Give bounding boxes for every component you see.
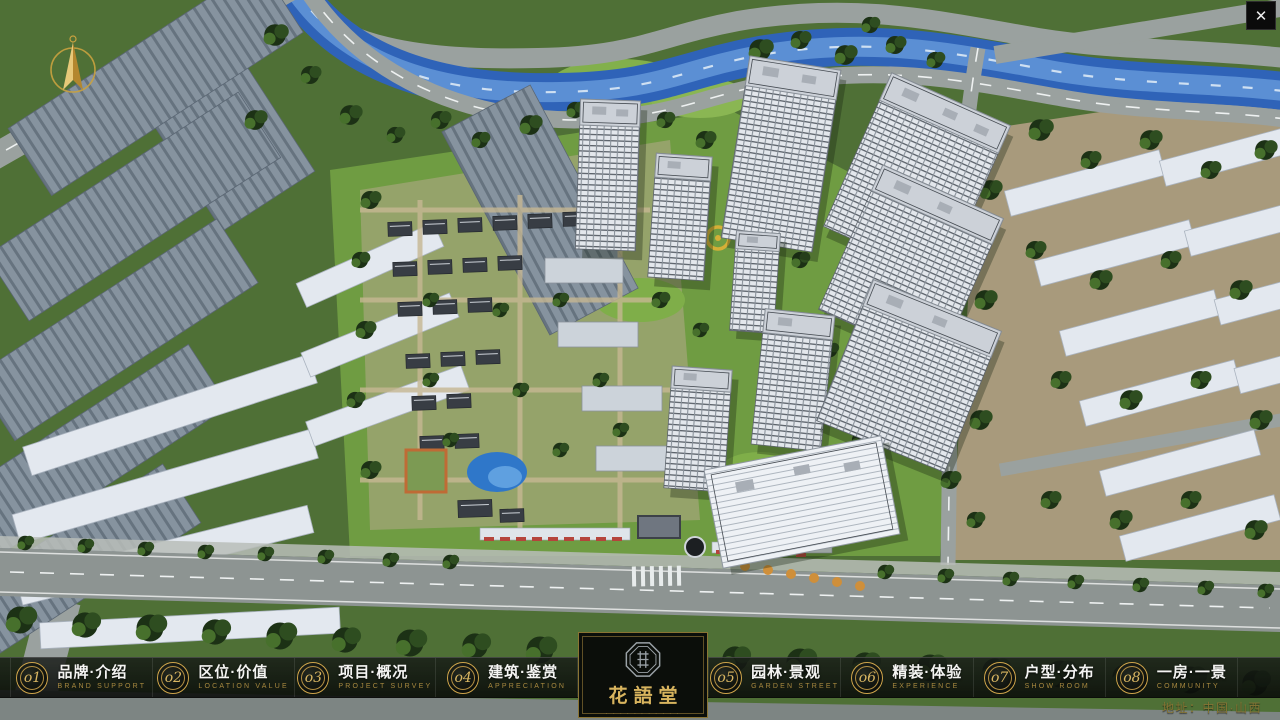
menu-item-architecture[interactable]: o4 建筑·鉴赏 APPRECIATION (436, 658, 578, 697)
menu-item-floorplan[interactable]: o7 户型·分布 SHOW ROOM (974, 658, 1106, 697)
menu-label-zh: 精装·体验 (892, 664, 962, 681)
menu-label-en: GARDEN STREET (751, 683, 839, 691)
menu-item-location[interactable]: o2 区位·价值 LOCATION VALUE (153, 658, 295, 697)
seal-emblem-icon (623, 641, 663, 678)
masterplan-3d-scene[interactable] (0, 0, 1280, 720)
item-number-badge: o5 (710, 662, 742, 694)
item-number-badge: o2 (157, 662, 189, 694)
menu-label-zh: 园林·景观 (751, 664, 821, 681)
menu-item-project[interactable]: o3 项目·概况 PROJECT SURVEY (295, 658, 437, 697)
menu-item-interior[interactable]: o6 精装·体验 EXPERIENCE (841, 658, 973, 697)
menu-label-zh: 一房·一景 (1157, 664, 1227, 681)
menu-label-zh: 项目·概况 (338, 664, 408, 681)
logo-tagline: · · · · · · · · · · · (606, 711, 680, 717)
menu-label-en: SHOW ROOM (1025, 683, 1090, 691)
menu-item-garden[interactable]: o5 园林·景观 GARDEN STREET (708, 658, 841, 697)
menu-group-left: o1 品牌·介绍 BRAND SUPPORT o2 区位·价值 LOCATION… (0, 657, 578, 698)
app-window: ✕ o1 品牌·介绍 BRAND SUPPORT o2 区位·价值 LOCATI… (0, 0, 1280, 720)
menu-label-en: LOCATION VALUE (198, 683, 288, 691)
menu-label-en: PROJECT SURVEY (338, 683, 432, 691)
menu-group-right: o5 园林·景观 GARDEN STREET o6 精装·体验 EXPERIEN… (708, 657, 1280, 698)
menu-label-zh: 品牌·介绍 (57, 664, 127, 681)
close-button[interactable]: ✕ (1246, 1, 1276, 30)
logo-title: 花語堂 (602, 681, 683, 708)
menu-label-en: BRAND SUPPORT (57, 683, 146, 691)
address-text: 地址：中国·山西 (1162, 699, 1262, 716)
brand-logo[interactable]: 花語堂 · · · · · · · · · · · (578, 632, 708, 718)
menu-item-views[interactable]: o8 一房·一景 COMMUNITY (1106, 658, 1238, 697)
compass-icon[interactable] (44, 30, 102, 100)
menu-label-en: EXPERIENCE (892, 683, 959, 691)
menu-label-zh: 区位·价值 (198, 664, 268, 681)
item-number-badge: o3 (297, 662, 329, 694)
bottom-menu: o1 品牌·介绍 BRAND SUPPORT o2 区位·价值 LOCATION… (0, 657, 1280, 698)
item-number-badge: o6 (851, 662, 883, 694)
menu-label-zh: 户型·分布 (1025, 664, 1095, 681)
menu-item-brand[interactable]: o1 品牌·介绍 BRAND SUPPORT (10, 658, 153, 697)
item-number-badge: o8 (1116, 662, 1148, 694)
menu-label-en: APPRECIATION (488, 683, 566, 691)
item-number-badge: o7 (984, 662, 1016, 694)
item-number-badge: o1 (16, 662, 48, 694)
item-number-badge: o4 (447, 662, 479, 694)
menu-label-en: COMMUNITY (1157, 683, 1220, 691)
menu-label-zh: 建筑·鉴赏 (488, 664, 558, 681)
